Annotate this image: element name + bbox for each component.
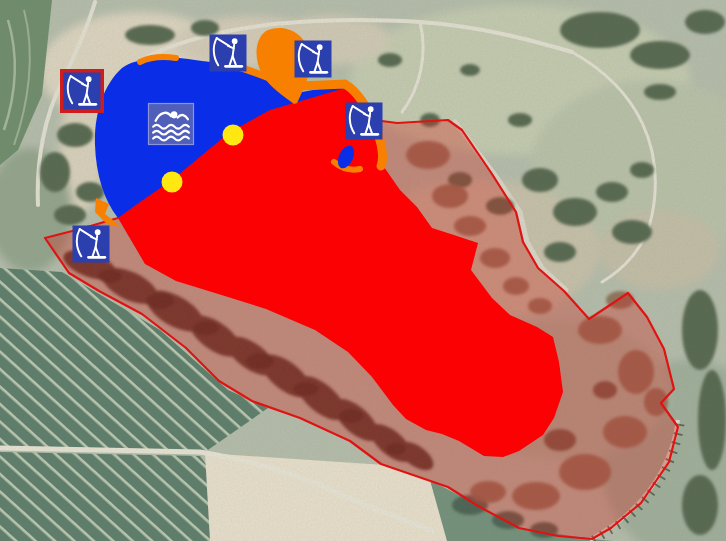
fishing-spot-icon-1[interactable] bbox=[60, 69, 104, 113]
fishing-spot-icon-3[interactable] bbox=[295, 41, 332, 78]
fishing-spot-icon-4[interactable] bbox=[346, 103, 383, 140]
fishing-spot-icon-5[interactable] bbox=[73, 226, 110, 263]
swimming-area-icon[interactable] bbox=[149, 104, 194, 145]
buoy-marker-2[interactable] bbox=[162, 172, 183, 193]
map-viewport bbox=[0, 0, 726, 541]
buoy-marker-1[interactable] bbox=[223, 125, 244, 146]
swimmer-pictogram bbox=[153, 111, 189, 140]
fishing-spot-icon-2[interactable] bbox=[210, 35, 247, 72]
